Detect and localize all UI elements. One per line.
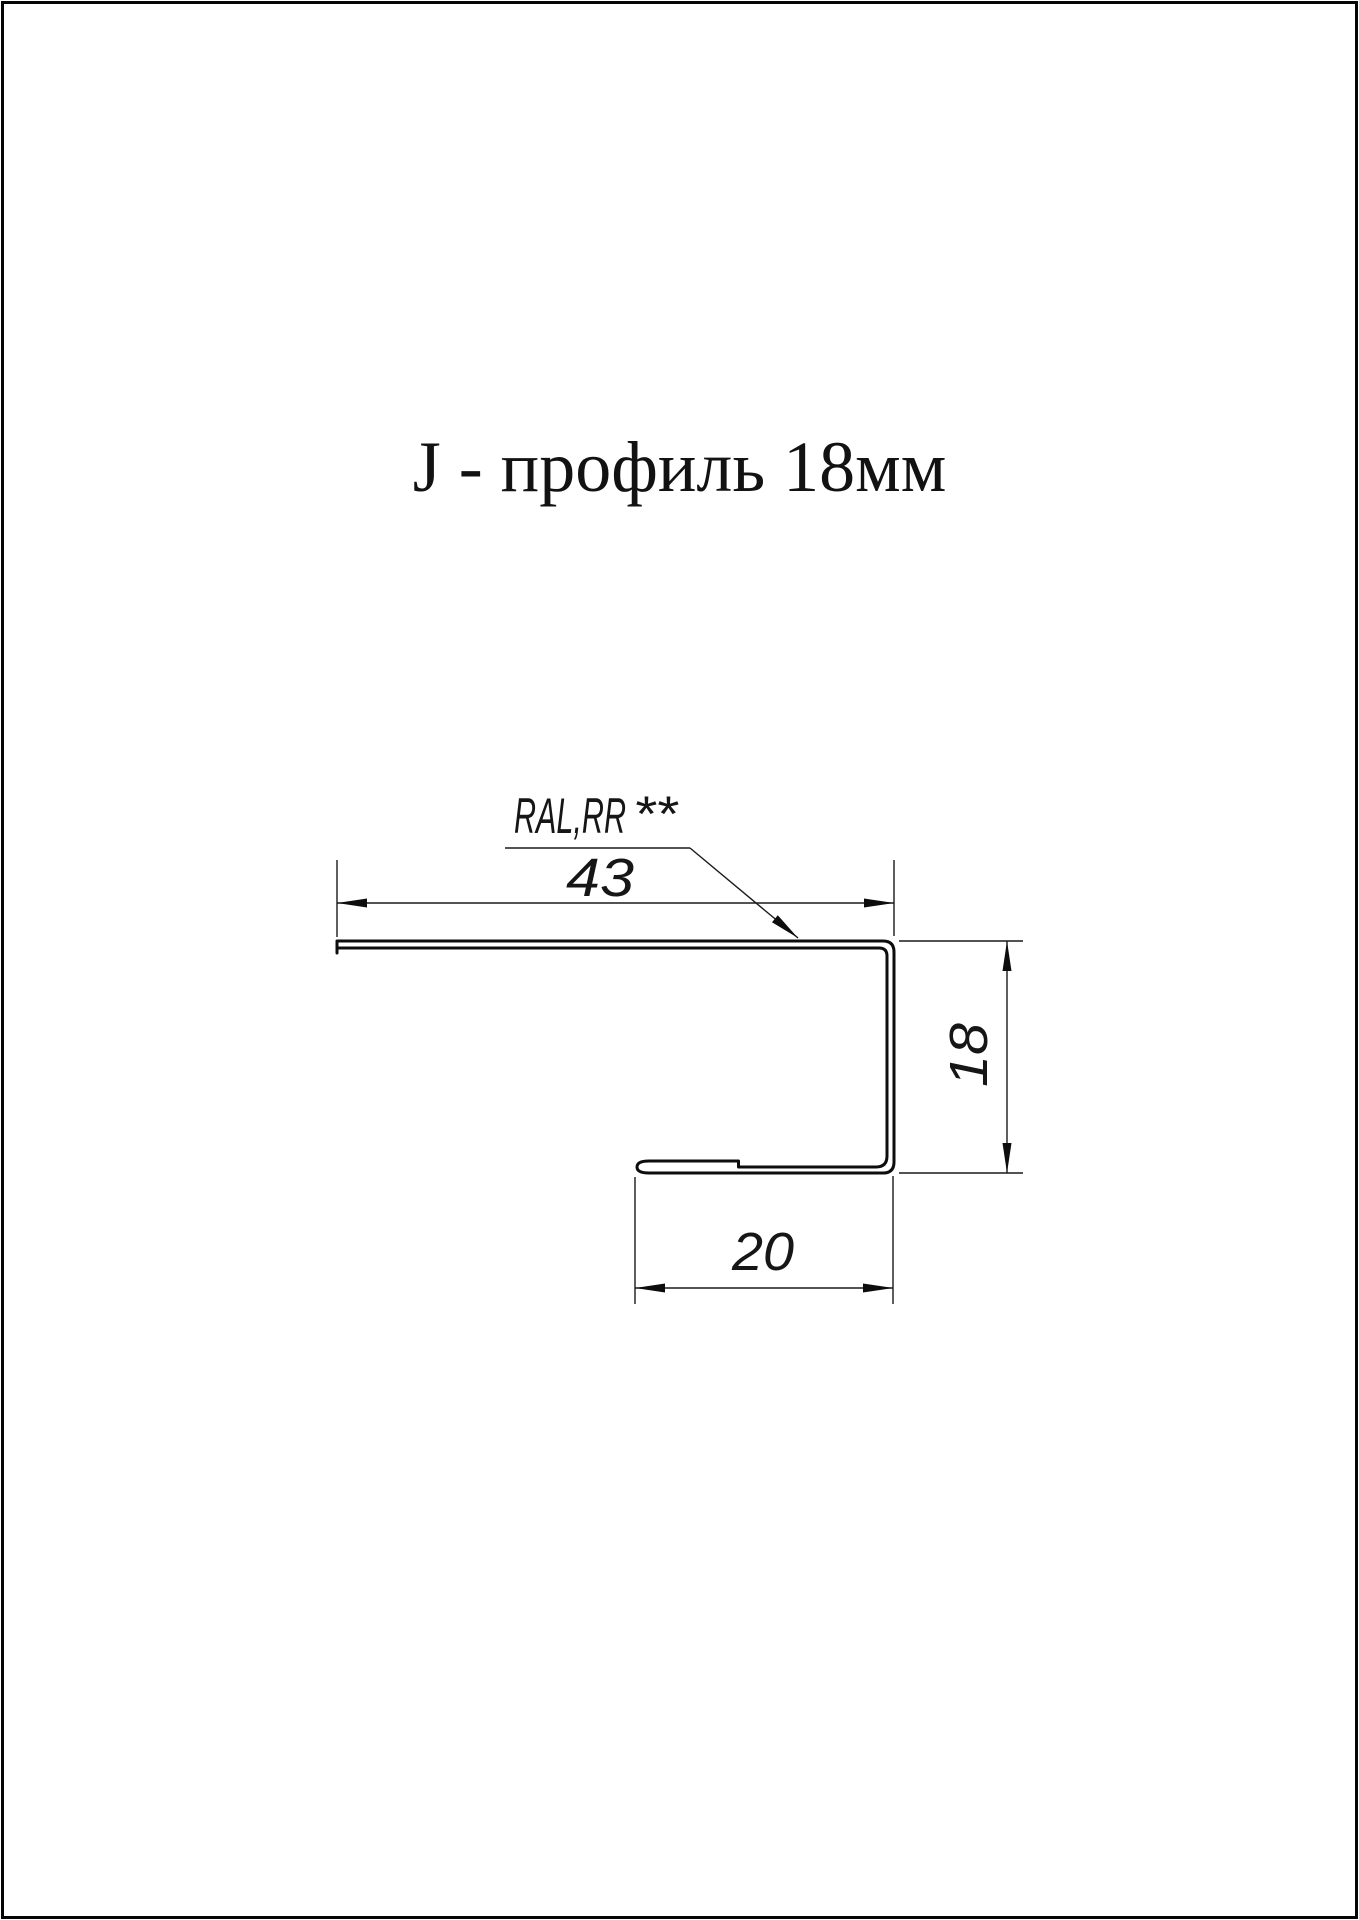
drawing-sheet: J - профиль 18мм 43 18 (0, 0, 1359, 1920)
coating-label: RAL,RR (514, 788, 626, 844)
coating-callout: RAL,RR ** (505, 786, 798, 938)
dimension-bottom-lip: 20 (635, 1176, 893, 1304)
leader-arrowhead (772, 915, 798, 938)
arrowhead-left (337, 899, 367, 908)
dimension-top-width: 43 (337, 848, 894, 937)
dimension-value-right-height: 18 (939, 1023, 999, 1087)
arrowhead-top (1003, 941, 1012, 971)
dimension-value-bottom-lip: 20 (731, 1222, 794, 1282)
profile-outline (337, 941, 894, 1173)
dimension-right-height: 18 (899, 941, 1023, 1173)
dimension-value-top-width: 43 (566, 848, 634, 908)
arrowhead-right (864, 899, 894, 908)
arrowhead-bottom (1003, 1143, 1012, 1173)
profile-drawing: 43 18 20 RAL,RR ** (0, 0, 1359, 1920)
arrowhead-left (635, 1284, 665, 1293)
arrowhead-right (863, 1284, 893, 1293)
coating-label-asterisks: ** (633, 786, 679, 842)
